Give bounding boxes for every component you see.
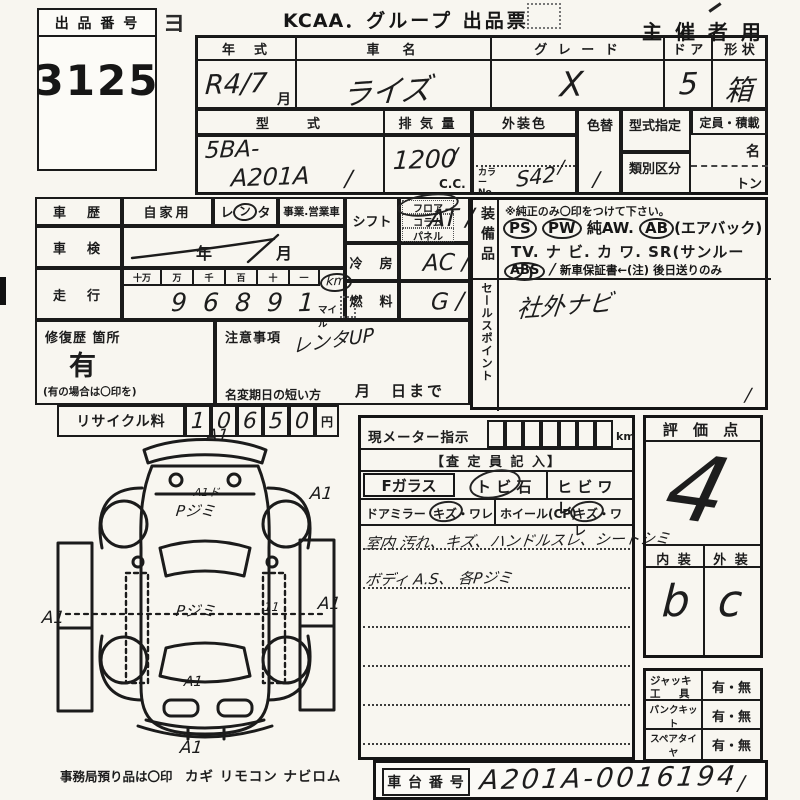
mileage-cell: 十万 万 千 百 十 一 9 6 8 9 1 km マイル [122, 268, 345, 320]
damage-mark: A1 [183, 674, 203, 690]
tool-row-jack: ジャッキ 工 具 有・無 [646, 671, 760, 701]
displacement-unit: C.C. [439, 177, 466, 191]
class-cell: 類別区分 [621, 152, 691, 195]
shape-header: 形 状 [711, 35, 768, 61]
door-header: ド ア [663, 35, 713, 61]
rename-label: 名変期日の短い方 [225, 386, 321, 403]
displacement-cell: 1200 / C.C. [383, 135, 472, 195]
damage-mark: A1 [205, 426, 230, 446]
salespoint-value: 社外ナビ [515, 282, 614, 324]
equipment-block: 装備品 セールスポイント ※純正のみ〇印をつけて下さい。 PS PW 純AW. … [470, 197, 768, 410]
mileage-digit-2: 6 [195, 283, 227, 320]
salespoint-corner-slash: / [744, 385, 751, 406]
salespoint-label: セールスポイント [479, 282, 495, 382]
fuel-header: 燃 料 [345, 281, 399, 320]
mileage-digit-5: 1 [291, 283, 321, 320]
salespoint-vert-cell: セールスポイント [473, 278, 499, 411]
equipment-label: 装備品 [477, 206, 497, 266]
tools-box: ジャッキ 工 具 有・無 パンクキット 有・無 スペアタイヤ 有・無 [643, 668, 763, 762]
history-private: 自家用 [122, 197, 213, 226]
model-slash: / [344, 167, 353, 192]
shift-cell: フロア コラム パネル AT / [399, 197, 470, 243]
deposit-items: カギ リモコン ナビロム [185, 765, 341, 785]
year-cell: R4/7 月 [195, 59, 297, 109]
rental-char-2: タ [258, 202, 271, 221]
door-mirror-label: ドアミラー [366, 505, 426, 522]
fuel-value: G / [430, 288, 464, 315]
meter-label: 現メーター指示 [368, 426, 470, 446]
jack-presence: 有・無 [703, 671, 760, 701]
kcaa-logo: KCAA [283, 10, 344, 32]
displacement-header: 排 気 量 [383, 109, 472, 135]
equipment-line1: PS PW 純AW. AB(エアバック) [503, 217, 762, 239]
glass-row: Fガラス ト ビ 石 ヒ ビ ワ レ [361, 472, 632, 500]
month-suffix: 月 [277, 89, 291, 109]
score-box: 評 価 点 4 内 装 外 装 b c [643, 415, 763, 658]
scan-artifact-bar [0, 277, 6, 305]
type-designation-label: 型式指定 [629, 115, 681, 134]
scan-artifact-box [527, 3, 561, 29]
history-rental: レンタ [213, 197, 278, 226]
color-value: S42 [516, 162, 556, 192]
lot-number-label: 出 品 番 号 [39, 10, 155, 37]
interior-header: 内 装 [646, 546, 703, 570]
color-cell: カラーNo. S42 / [472, 135, 577, 195]
equip-warranty: 新車保証書←(注) 後日送りのみ [560, 263, 722, 277]
chassis-slash: / [737, 771, 745, 795]
jack-label-2: 工 具 [650, 686, 694, 701]
exterior-header: 外 装 [703, 546, 760, 570]
capacity-tons-cell: トン [691, 165, 768, 195]
mileage-digit-4: 9 [259, 283, 291, 320]
inspection-header: 車 検 [35, 226, 122, 268]
car-outline-drawing [38, 428, 353, 758]
lot-number-box: 出 品 番 号 3125 [37, 8, 157, 171]
mileage-digit-3: 8 [227, 283, 259, 320]
equip-ab-note: (エアバック) [674, 219, 762, 237]
lot-number-value: 3125 [39, 50, 155, 110]
rental-char-circled: ン [233, 201, 259, 221]
meter-digit-cell [505, 420, 523, 448]
meter-digit-cell [559, 420, 577, 448]
rename-date-suffix: 月 日まで [355, 380, 445, 401]
color-header: 外装色 [472, 109, 577, 135]
model-cell: 5BA- A201A / [195, 135, 385, 195]
mileage-header: 走 行 [35, 268, 122, 320]
inspection-cell: 年 月 [122, 226, 345, 268]
equip-ab-circled: AB [639, 218, 674, 239]
year-header: 年 式 [195, 35, 297, 61]
capacity-persons: 名 [746, 141, 760, 161]
rental-char-1: レ [220, 202, 233, 221]
model-value-1: 5BA- [204, 136, 260, 164]
chassis-box: 車 台 番 号 A201A-0016194 / [373, 760, 768, 800]
color-slash: / [557, 157, 564, 178]
score-value: 4 [655, 433, 739, 546]
shape-value: 箱 [724, 68, 754, 109]
recolor-label: 色替 [587, 115, 613, 134]
history-business: 事業.営業車 [278, 197, 345, 226]
equip-abs-circled: ABS [504, 262, 545, 281]
exterior-grade: c [717, 576, 744, 628]
caution-value: レンタUP [292, 320, 374, 359]
meter-unit: km [616, 430, 635, 443]
tool-row-puncture-kit: パンクキット 有・無 [646, 701, 760, 730]
puncture-kit-label: パンクキット [646, 701, 703, 730]
interior-grade: b [661, 575, 692, 627]
damage-mark: A1 [317, 594, 342, 614]
ac-header: 冷 房 [345, 243, 399, 281]
year-value: R4/7 [204, 68, 268, 101]
grade-header: グ レ ー ド [490, 35, 665, 61]
repair-value: 有 [69, 344, 96, 383]
damage-mark: A1 [41, 608, 66, 628]
meter-digit-cell [595, 420, 613, 448]
damage-mark: Pジミ [175, 600, 216, 621]
puncture-kit-presence: 有・無 [703, 701, 760, 730]
repair-note: (有の場合は〇印を) [43, 384, 137, 399]
mileage-digit-0 [125, 285, 163, 320]
recolor-value: / [592, 167, 600, 191]
mirror-wheel-row: ドアミラー キズ・ワレ ホイール(CP) キズ・ワレ [361, 500, 632, 526]
spare-tire-label: スペアタイヤ [646, 730, 703, 759]
tool-row-spare-tire: スペアタイヤ 有・無 [646, 730, 760, 759]
stray-mark: ヨ [163, 6, 185, 38]
damage-mark: A1 [309, 484, 334, 504]
displacement-value: 1200 [392, 144, 457, 175]
mileage-digit-1: 9 [163, 283, 195, 320]
inspection-pen-stroke [124, 228, 347, 270]
ac-value: AC / [422, 249, 470, 277]
meter-row: 現メーター指示 km [361, 418, 632, 450]
office-note: 事務局預り品は〇印 [60, 766, 173, 785]
repair-box: 修復歴 箇所 有 (有の場合は〇印を) [35, 320, 215, 405]
pen-tick [708, 2, 721, 12]
name-header: 車 名 [295, 35, 492, 61]
damage-mark: A1ド [193, 484, 220, 500]
equip-pw-circled: PW [542, 218, 582, 239]
meter-digit-cell [487, 420, 505, 448]
class-label: 類別区分 [629, 158, 681, 177]
grade-cell: X [490, 59, 665, 109]
type-designation-cell: 型式指定 [621, 109, 691, 152]
damage-mark: A1 [179, 738, 204, 758]
chassis-label: 車 台 番 号 [382, 768, 470, 796]
meter-digit-cell [523, 420, 541, 448]
chassis-value: A201A-0016194 [478, 761, 739, 797]
displacement-slash: / [450, 143, 458, 167]
equipment-vert-cell: 装備品 [473, 200, 499, 278]
wheel-label: ホイール(CP) [500, 505, 577, 522]
mileage-unit-100k: 十万 [124, 270, 162, 286]
meter-digit-cell [541, 420, 559, 448]
shift-header: シフト [345, 197, 399, 243]
grade-value: X [559, 65, 584, 106]
door-cell: 5 [663, 59, 713, 109]
damage-mark: Pジミ [175, 500, 216, 521]
shift-value: AT / [428, 203, 474, 233]
meter-digit-cell [577, 420, 595, 448]
spare-tire-presence: 有・無 [703, 730, 760, 759]
name-cell: ライズ [295, 59, 492, 109]
history-header: 車 歴 [35, 197, 122, 226]
capacity-persons-cell: 名 [691, 135, 768, 165]
shape-cell: 箱 [711, 59, 768, 109]
caution-box: 注意事項 レンタUP 名変期日の短い方 月 日まで [215, 320, 470, 405]
damage-mark: 11 [263, 600, 280, 614]
equip-ps-circled: PS [503, 218, 537, 239]
car-diagram: A1 A1 A1ド Pジミ Pジミ A1 A1 11 A1 A1 [38, 428, 353, 758]
model-value-2: A201A [230, 162, 310, 193]
caution-label: 注意事項 [225, 327, 281, 346]
door-value: 5 [678, 67, 699, 103]
capacity-tons: トン [736, 173, 762, 192]
sheet-title-rest: ．グループ 出品票 [344, 10, 528, 32]
recolor-cell: 色替 / [577, 109, 621, 195]
meter-box: 現メーター指示 km 【査 定 員 記 入】 Fガラス ト ビ 石 ヒ ビ ワ … [358, 415, 635, 760]
fuel-cell: G / [399, 281, 470, 320]
capacity-header: 定員・積載 [691, 109, 768, 135]
auction-sheet: 出 品 番 号 3125 ヨ KCAA．グループ 出品票 主 催 者 用 年 式… [0, 0, 800, 800]
name-value: ライズ [341, 64, 433, 115]
model-header: 型 式 [195, 109, 385, 135]
equip-slash: / [549, 260, 555, 278]
ac-cell: AC / [399, 243, 470, 281]
sheet-title: KCAA．グループ 出品票 [283, 6, 529, 33]
front-glass-label: Fガラス [363, 473, 455, 497]
color-no-label: カラーNo. [478, 169, 504, 199]
equip-aw: 純AW. [587, 219, 634, 237]
equipment-line3: ABS / 新車保証書←(注) 後日送りのみ [504, 260, 722, 281]
